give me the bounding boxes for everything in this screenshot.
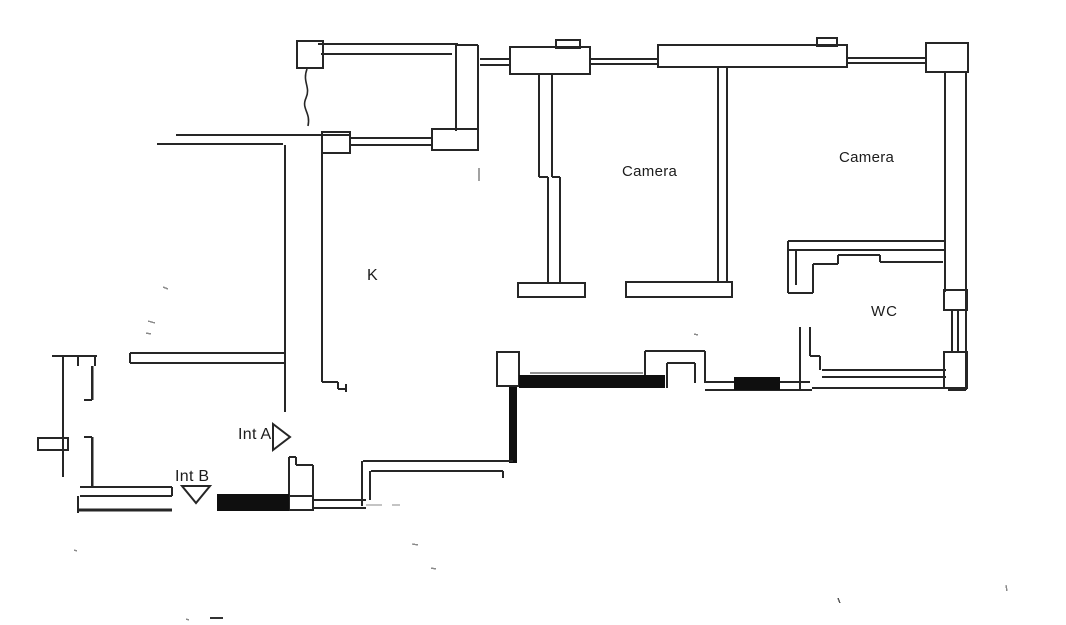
entrance-label-int-b: Int B xyxy=(175,468,209,486)
room-label-camera-2: Camera xyxy=(839,149,894,166)
triangle-right-icon xyxy=(273,424,290,450)
room-label-kitchen: K xyxy=(367,267,378,285)
room-label-camera-1: Camera xyxy=(622,163,677,180)
living-area-walls xyxy=(289,387,517,510)
floorplan-drawing xyxy=(0,0,1066,625)
south-solid-walls xyxy=(497,351,812,390)
scan-noise xyxy=(74,168,1007,620)
room-label-wc: WC xyxy=(871,303,898,320)
balcony-door-squiggle xyxy=(305,69,309,126)
balcony-walls xyxy=(297,41,478,153)
west-entrance-walls xyxy=(38,356,97,488)
camera1-walls xyxy=(518,67,732,297)
corridor-walls xyxy=(130,135,350,412)
southwest-walls xyxy=(77,487,289,513)
floor-plan-page: Camera Camera K WC Int A Int B xyxy=(0,0,1066,625)
east-wall xyxy=(944,72,967,390)
entrance-label-int-a: Int A xyxy=(238,426,272,444)
north-wall xyxy=(480,38,968,74)
triangle-down-icon xyxy=(182,486,210,503)
entrance-markers xyxy=(182,424,290,503)
